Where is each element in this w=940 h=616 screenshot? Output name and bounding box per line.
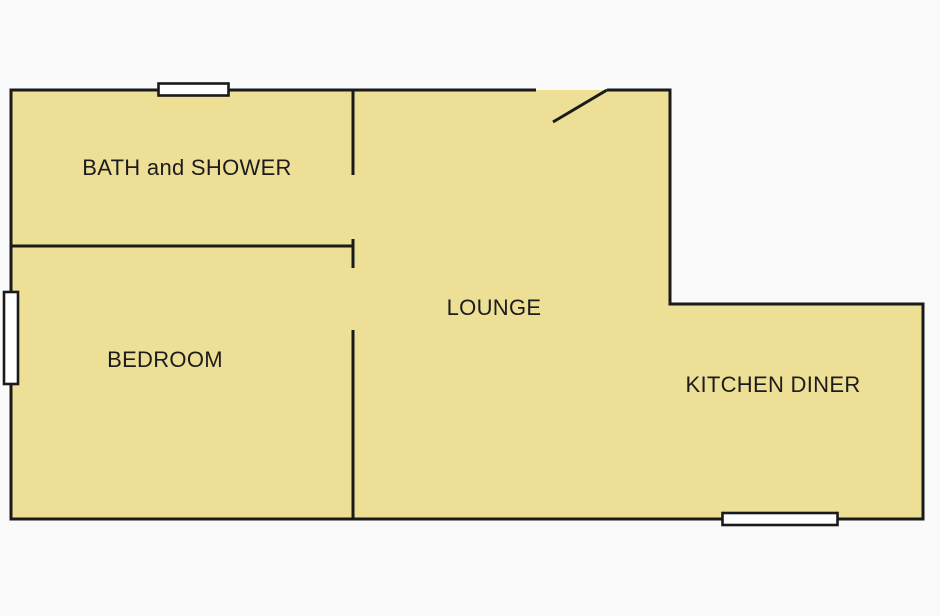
top-wall-window-icon	[159, 84, 229, 96]
room-label-kitchen-diner: KITCHEN DINER	[685, 372, 860, 398]
floorplan-canvas: BATH and SHOWER BEDROOM LOUNGE KITCHEN D…	[0, 0, 940, 616]
bottom-wall-window-icon	[723, 513, 838, 525]
room-label-bath-and-shower: BATH and SHOWER	[82, 155, 291, 181]
room-label-lounge: LOUNGE	[447, 295, 542, 321]
left-wall-window-icon	[4, 292, 18, 384]
room-label-bedroom: BEDROOM	[107, 347, 223, 373]
